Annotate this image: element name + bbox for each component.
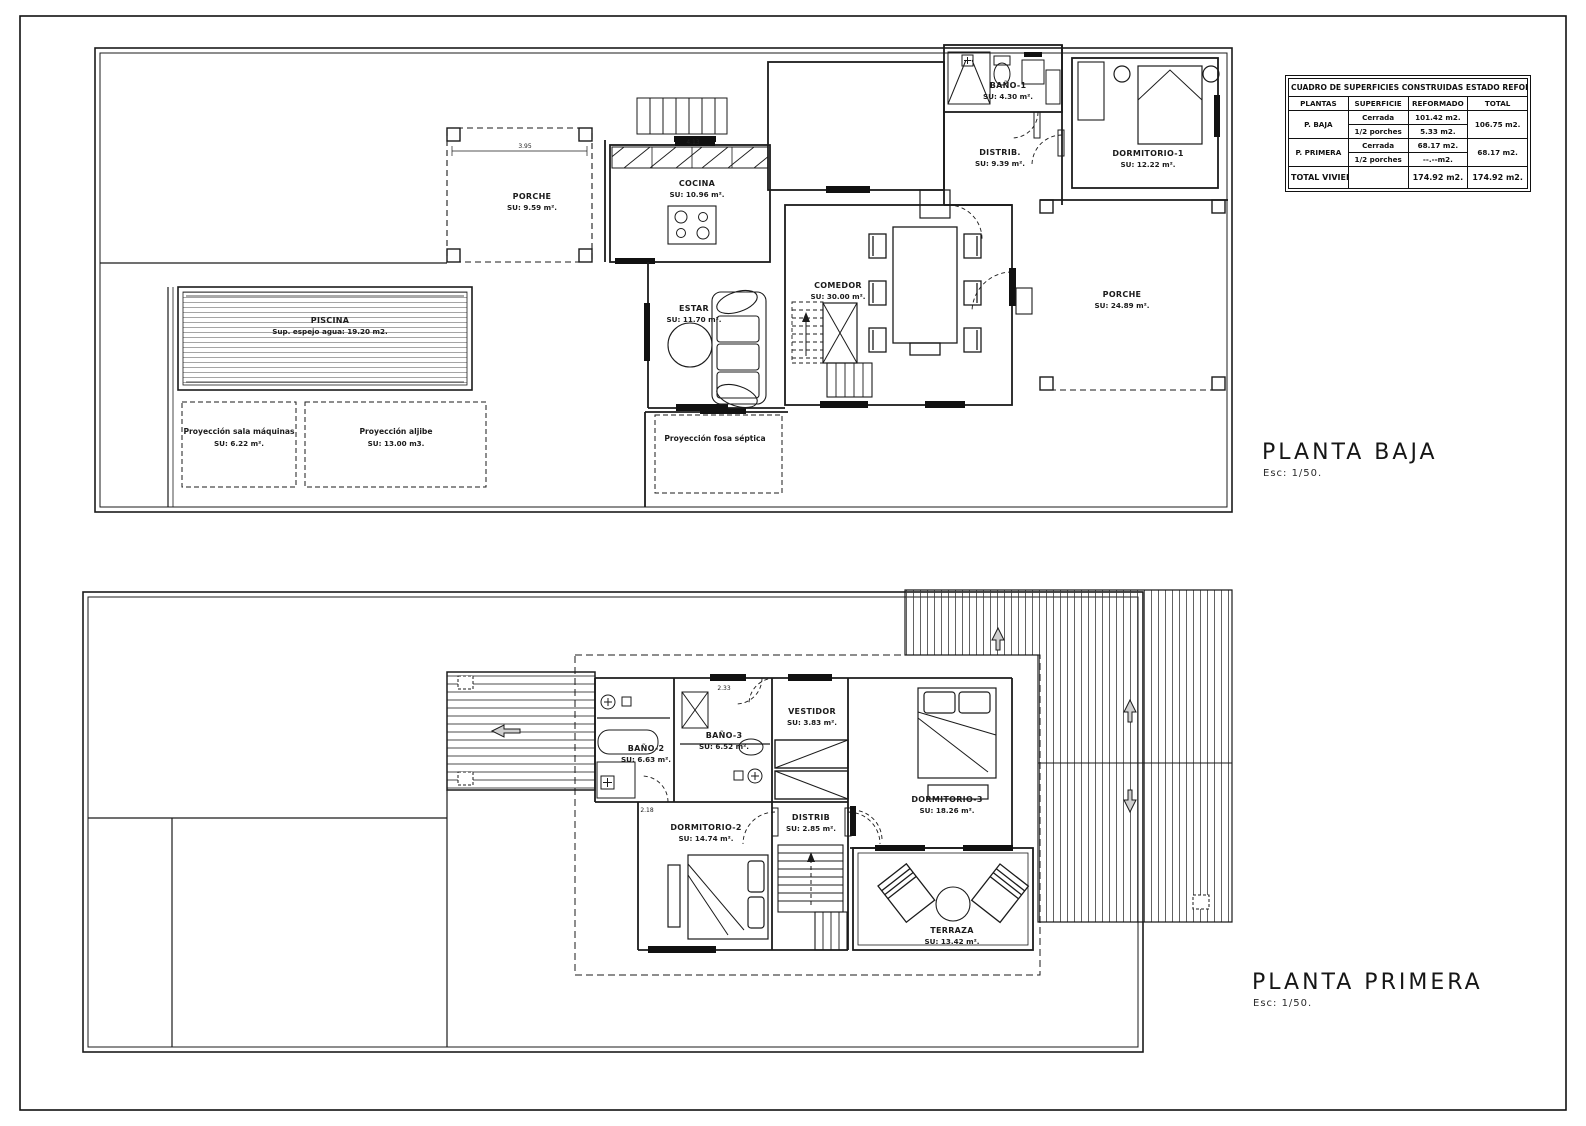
dim-banyo3-width: 2.33 <box>717 685 731 692</box>
stairs-primera <box>778 845 847 950</box>
washer <box>682 692 708 728</box>
banyo2-area: SU: 6.63 m². <box>621 755 671 764</box>
planta-baja-scale: Esc: 1/50. <box>1263 468 1322 479</box>
cell-primera-cerrada: Cerrada <box>1348 139 1408 153</box>
dim-porche-width: 3.95 <box>518 143 532 150</box>
door-panel <box>1009 268 1016 306</box>
estar-room <box>644 262 785 412</box>
planta-baja-title: PLANTA BAJA <box>1262 440 1438 465</box>
terraza-area: SU: 13.42 m². <box>925 937 980 946</box>
distrib-baja-label: DISTRIB. <box>979 148 1021 157</box>
dormitorio3-area: SU: 18.26 m². <box>920 806 975 815</box>
cell-primera-cerrada-val: 68.17 m2. <box>1408 139 1468 153</box>
col-header-plantas: PLANTAS <box>1289 97 1349 111</box>
lounge-chair <box>972 864 1029 922</box>
terraza-label: TERRAZA <box>930 926 974 935</box>
distrib-primera-area: SU: 2.85 m². <box>786 824 836 833</box>
wardrobe <box>1078 62 1104 120</box>
cell-baja-cerrada: Cerrada <box>1348 111 1408 125</box>
cell-baja-total: 106.75 m2. <box>1468 111 1528 139</box>
cocina-area: SU: 10.96 m². <box>670 190 725 199</box>
window-bar <box>615 258 655 264</box>
comedor-area: SU: 30.00 m². <box>811 292 866 301</box>
sala-maquinas-label: Proyección sala máquinas <box>183 427 295 436</box>
porche-e-label: PORCHE <box>1103 290 1142 299</box>
fosa-label: Proyección fosa séptica <box>664 434 765 443</box>
chair <box>869 234 981 352</box>
table-row: P. BAJA Cerrada 101.42 m2. 106.75 m2. <box>1289 111 1528 125</box>
dormitorio3-label: DORMITORIO-3 <box>911 795 982 804</box>
stair-direction-arrow <box>807 852 815 862</box>
window-bar <box>1214 95 1220 137</box>
comedor-label: COMEDOR <box>814 281 862 290</box>
surfaces-table: CUADRO DE SUPERFICIES CONSTRUIDAS ESTADO… <box>1285 75 1531 192</box>
room-labels-primera: BAÑO-2 SU: 6.63 m². BAÑO-3 SU: 6.52 m². … <box>621 707 983 946</box>
vestidor-label: VESTIDOR <box>788 707 836 716</box>
window-bar <box>788 674 832 681</box>
estar-label: ESTAR <box>679 304 709 313</box>
window-bar <box>648 946 716 953</box>
dim-cocina-width: 4.13 <box>686 139 700 146</box>
window-bar <box>820 401 868 408</box>
dormitorio2-furniture <box>668 855 768 939</box>
table-total-row: TOTAL VIVIENDA: 174.92 m2. 174.92 m2. <box>1289 167 1528 189</box>
planta-primera-plan <box>83 590 1232 1052</box>
upper-block <box>768 62 950 218</box>
cocina-label: COCINA <box>679 179 716 188</box>
pool <box>178 287 472 390</box>
banyo3-label: BAÑO-3 <box>706 730 743 740</box>
door-panel <box>850 806 856 836</box>
stair-direction-arrow <box>802 312 810 322</box>
cell-baja-porches: 1/2 porches <box>1348 125 1408 139</box>
piscina-label: PISCINA <box>311 316 350 325</box>
dormitorio1-area: SU: 12.22 m². <box>1121 160 1176 169</box>
col-header-reformado: REFORMADO <box>1408 97 1468 111</box>
cell-planta-baja: P. BAJA <box>1289 111 1349 139</box>
drawing-sheet: PORCHE SU: 9.59 m². COCINA SU: 10.96 m².… <box>0 0 1586 1126</box>
window-bar <box>925 401 965 408</box>
window-bar <box>644 303 650 361</box>
doormat <box>826 186 870 193</box>
comedor-room <box>785 205 1016 408</box>
col-header-total: TOTAL <box>1468 97 1528 111</box>
aljibe-label: Proyección aljibe <box>359 427 432 436</box>
cell-primera-total: 68.17 m2. <box>1468 139 1528 167</box>
cell-total-superficie <box>1348 167 1408 189</box>
door-arc <box>972 272 1012 312</box>
banyo1-label: BAÑO-1 <box>990 80 1027 90</box>
window-bar <box>710 674 746 681</box>
dormitorio1-label: DORMITORIO-1 <box>1112 149 1184 158</box>
doormat <box>676 404 728 411</box>
window-bar <box>963 845 1013 851</box>
round-table <box>936 887 970 921</box>
door-arc <box>743 812 775 844</box>
cell-total-reformado: 174.92 m2. <box>1408 167 1468 189</box>
cell-total-total: 174.92 m2. <box>1468 167 1528 189</box>
surfaces-table-title: CUADRO DE SUPERFICIES CONSTRUIDAS ESTADO… <box>1289 79 1528 97</box>
banyo2-label: BAÑO-2 <box>628 743 665 753</box>
porche-nw-area: SU: 9.59 m². <box>507 203 557 212</box>
roof-column <box>1193 895 1209 909</box>
col-header-superficie: SUPERFICIE <box>1348 97 1408 111</box>
porche-nw-label: PORCHE <box>513 192 552 201</box>
vestidor-area: SU: 3.83 m². <box>787 718 837 727</box>
dining-table <box>869 227 981 355</box>
cell-planta-primera: P. PRIMERA <box>1289 139 1349 167</box>
window-bar <box>875 845 925 851</box>
banyo3-area: SU: 6.52 m². <box>699 742 749 751</box>
terrace-hatch-left <box>447 672 595 790</box>
dormitorio2-label: DORMITORIO-2 <box>670 823 741 832</box>
bed <box>1114 66 1219 144</box>
sofa <box>712 286 766 412</box>
porche-e-area: SU: 24.89 m². <box>1095 301 1150 310</box>
stove <box>668 206 716 244</box>
cell-total-label: TOTAL VIVIENDA: <box>1289 167 1349 189</box>
door-arc <box>852 810 882 840</box>
entry-steps <box>637 98 727 142</box>
door-arc <box>642 776 668 802</box>
roof-hatch-right <box>905 590 1232 922</box>
dormitorio2-area: SU: 14.74 m². <box>679 834 734 843</box>
cell-primera-porches: 1/2 porches <box>1348 153 1408 167</box>
vestidor-wardrobes <box>749 678 848 799</box>
round-table <box>668 323 712 367</box>
planta-primera-title: PLANTA PRIMERA <box>1252 970 1483 995</box>
dim-banyo2-width: 2.18 <box>640 807 654 814</box>
plan-titles: PLANTA BAJA Esc: 1/50. PLANTA PRIMERA Es… <box>1252 440 1483 1009</box>
banyo1-area: SU: 4.30 m². <box>983 92 1033 101</box>
sink <box>1022 52 1044 84</box>
aljibe-area: SU: 13.00 m3. <box>368 439 425 448</box>
table-row: P. PRIMERA Cerrada 68.17 m2. 68.17 m2. <box>1289 139 1528 153</box>
piscina-area: Sup. espejo agua: 19.20 m2. <box>272 327 388 336</box>
cell-primera-porches-val: --.--m2. <box>1408 153 1468 167</box>
distrib-baja-area: SU: 9.39 m². <box>975 159 1025 168</box>
kitchen-counter <box>612 147 768 168</box>
dormitorio3-furniture <box>850 688 996 840</box>
fosa-septica-outline <box>655 415 782 493</box>
cocina-room <box>605 140 770 264</box>
bench <box>668 865 680 927</box>
distrib-primera-label: DISTRIB <box>792 813 830 822</box>
bath-cabinet <box>1046 70 1060 104</box>
cell-baja-porches-val: 5.33 m2. <box>1408 125 1468 139</box>
plot-boundary-primera <box>83 592 1143 1052</box>
sala-maquinas-area: SU: 6.22 m². <box>214 439 264 448</box>
cell-baja-cerrada-val: 101.42 m2. <box>1408 111 1468 125</box>
shower <box>597 762 635 798</box>
planta-primera-scale: Esc: 1/50. <box>1253 998 1312 1009</box>
estar-area: SU: 11.70 m². <box>667 315 722 324</box>
lounge-chair <box>878 864 935 922</box>
stairs-baja <box>792 302 872 397</box>
